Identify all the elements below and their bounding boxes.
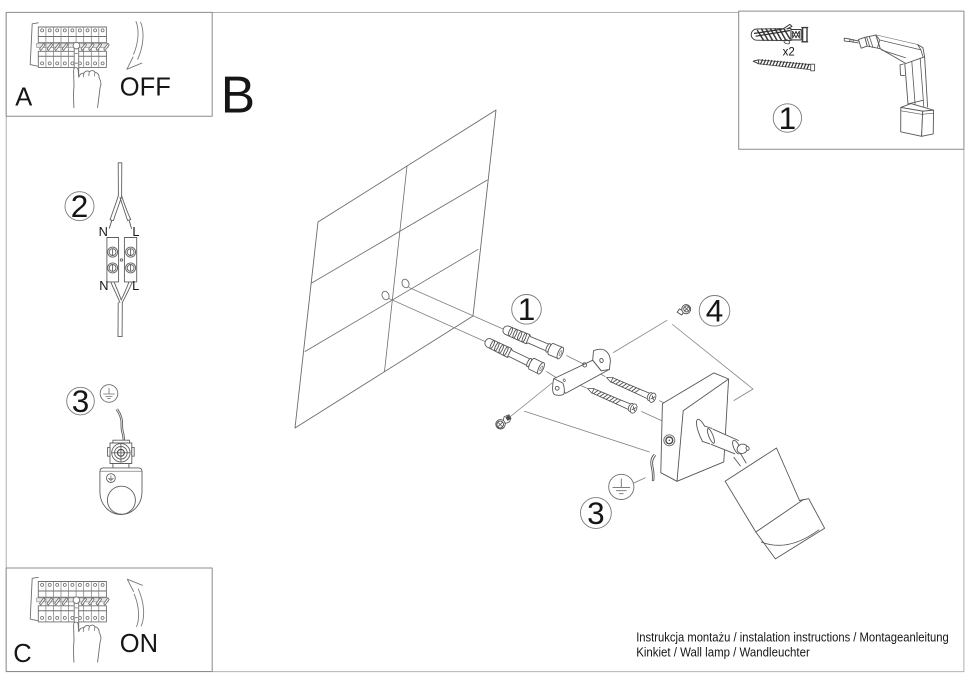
svg-text:L: L: [132, 278, 139, 293]
svg-text:N: N: [99, 224, 108, 239]
svg-text:Kinkiet / Wall lamp / Wandleuc: Kinkiet / Wall lamp / Wandleuchter: [636, 646, 810, 660]
svg-text:3: 3: [587, 495, 605, 531]
svg-text:OFF: OFF: [120, 74, 171, 102]
svg-text:1: 1: [518, 291, 536, 327]
svg-text:ON: ON: [120, 630, 158, 658]
svg-text:N: N: [99, 278, 108, 293]
svg-text:1: 1: [779, 100, 797, 136]
svg-text:A: A: [15, 83, 32, 111]
svg-text:L: L: [132, 224, 139, 239]
svg-text:Instrukcja montażu / instalati: Instrukcja montażu / instalation instruc…: [636, 631, 949, 645]
svg-text:3: 3: [72, 383, 90, 419]
svg-text:2: 2: [71, 188, 89, 224]
svg-text:x2: x2: [783, 46, 795, 58]
svg-text:C: C: [13, 640, 31, 668]
svg-text:4: 4: [706, 293, 724, 329]
svg-text:B: B: [221, 66, 255, 124]
